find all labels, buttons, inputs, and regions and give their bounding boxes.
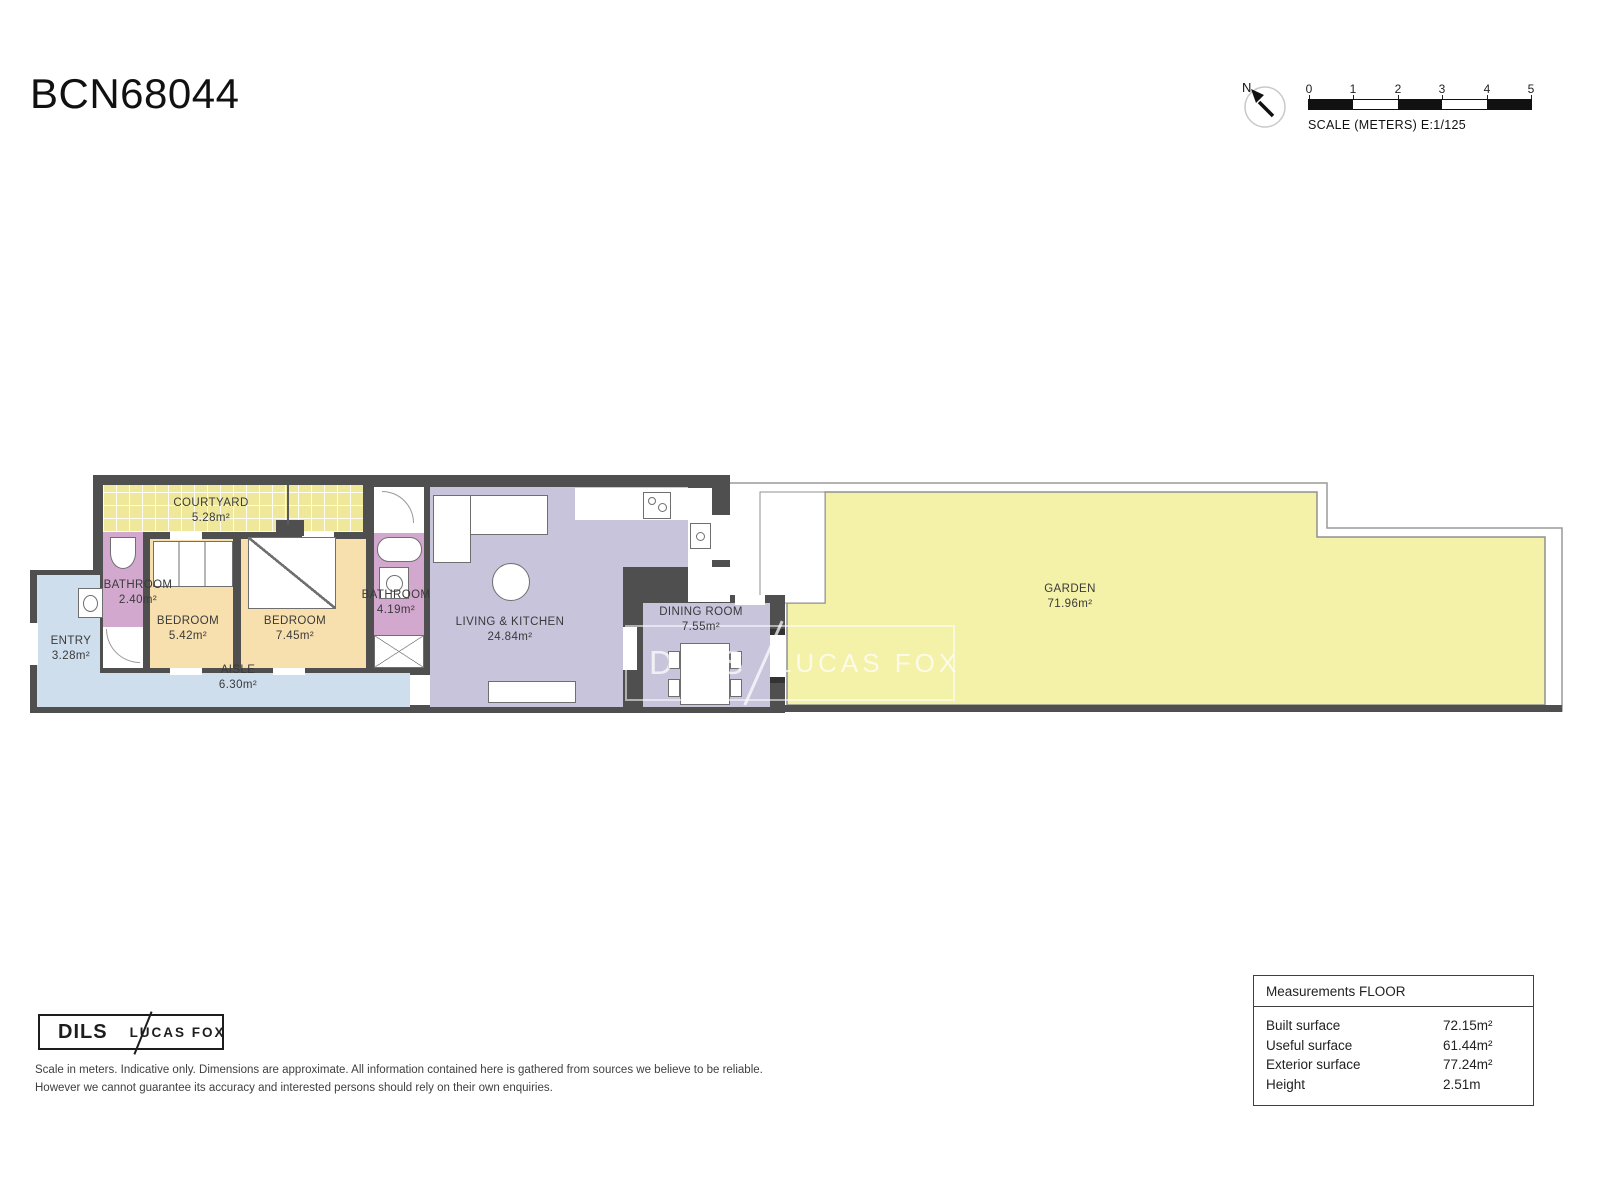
opening-dining-passage (735, 595, 765, 605)
scale-tick-label: 0 (1306, 82, 1313, 96)
door-bedroom-large (273, 668, 305, 675)
shower-area (374, 635, 424, 668)
north-compass-icon: N (1236, 76, 1294, 134)
label-bedroom-small: BEDROOM5.42m² (157, 614, 219, 644)
opening-aisle-living (410, 675, 430, 705)
table-row: Built surface72.15m² (1266, 1016, 1521, 1036)
toilet-icon (110, 537, 136, 569)
kitchen-sink-icon (690, 523, 711, 549)
floor-plan: DILS LUCAS FOX COURTYARD5.28m² BATHROOM2… (30, 475, 1566, 723)
sofa-chaise-icon (433, 495, 471, 563)
scale-caption: SCALE (METERS) E:1/125 (1308, 118, 1466, 132)
label-aisle: AISLE6.30m² (219, 663, 257, 693)
label-bathroom-small: BATHROOM2.40m² (104, 578, 173, 608)
scale-tick-label: 5 (1528, 82, 1535, 96)
label-garden: GARDEN71.96m² (1044, 582, 1096, 612)
stove-icon (643, 492, 671, 519)
label-bathroom-large: BATHROOM4.19m² (362, 588, 431, 618)
north-label: N (1242, 80, 1251, 95)
table-row: Height2.51m (1266, 1075, 1521, 1095)
scale-bar-segments (1308, 99, 1532, 110)
company-logo: DILS LUCAS FOX (38, 1014, 224, 1050)
window-courtyard-1 (170, 532, 202, 540)
label-living-kitchen: LIVING & KITCHEN24.84m² (456, 615, 565, 645)
scale-tick-label: 2 (1395, 82, 1402, 96)
sideboard-icon (488, 681, 576, 703)
door-bedroom-small (170, 668, 202, 675)
kitchen-passage (688, 567, 730, 602)
floorplan-page: BCN68044 N 0 1 2 3 4 5 SCALE (METERS) E:… (0, 0, 1600, 1200)
watermark-lucasfox: LUCAS FOX (777, 648, 960, 679)
label-dining: DINING ROOM7.55m² (659, 605, 743, 635)
watermark-dils: DILS (649, 644, 750, 682)
front-door (30, 623, 38, 665)
sink-small-icon (78, 588, 103, 618)
logo-dils: DILS (58, 1021, 108, 1044)
garden-cutout (760, 492, 825, 603)
coffee-table-icon (492, 563, 530, 601)
courtyard-divider (287, 485, 289, 525)
brand-watermark: DILS LUCAS FOX (625, 625, 955, 701)
scale-tick-label: 4 (1484, 82, 1491, 96)
label-courtyard: COURTYARD5.28m² (173, 496, 248, 526)
label-entry: ENTRY3.28m² (51, 634, 92, 664)
bathtub-icon (377, 537, 422, 562)
window-kitchen (712, 515, 730, 560)
measurements-header: Measurements FLOOR (1254, 976, 1533, 1007)
table-row: Exterior surface77.24m² (1266, 1055, 1521, 1075)
courtyard-step (276, 520, 304, 536)
table-row: Useful surface61.44m² (1266, 1036, 1521, 1056)
page-title: BCN68044 (30, 70, 239, 118)
scale-tick-label: 3 (1439, 82, 1446, 96)
label-bedroom-large: BEDROOM7.45m² (264, 614, 326, 644)
bed-large-icon (248, 537, 336, 609)
measurements-table: Measurements FLOOR Built surface72.15m² … (1253, 975, 1534, 1106)
scale-bar: 0 1 2 3 4 5 SCALE (METERS) E:1/125 (1308, 82, 1534, 138)
scale-tick-label: 1 (1350, 82, 1357, 96)
disclaimer-text: Scale in meters. Indicative only. Dimens… (35, 1062, 995, 1098)
